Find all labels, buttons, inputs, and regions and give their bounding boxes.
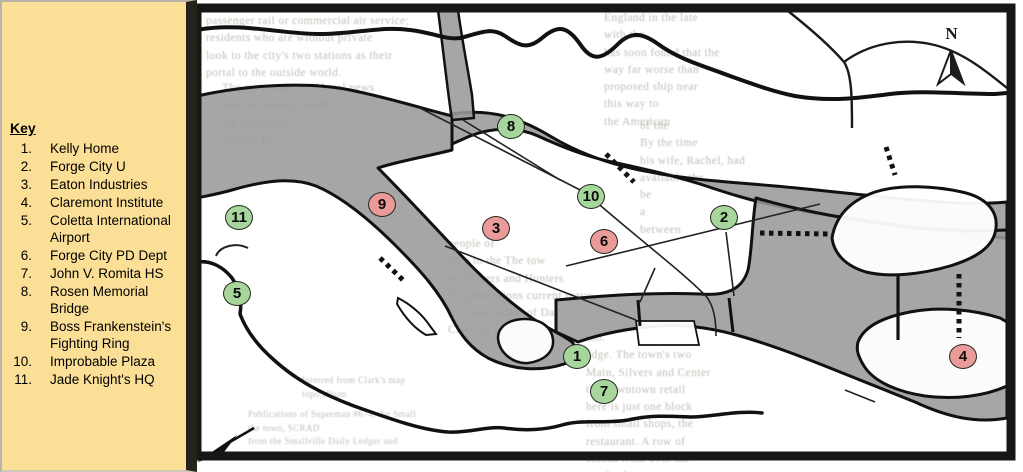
key-item-label: Kelly Home <box>50 140 175 157</box>
key-item: 6.Forge City PD Dept <box>2 247 186 264</box>
key-item: 1.Kelly Home <box>2 140 186 157</box>
key-list: 1.Kelly Home2.Forge City U3.Eaton Indust… <box>2 140 186 388</box>
road-northeast-curve <box>788 11 852 128</box>
key-item-number: 2. <box>2 158 32 175</box>
map-marker-1: 1 <box>563 344 591 369</box>
key-item-number: 1. <box>2 140 32 157</box>
key-item-label: Boss Frankenstein's Fighting Ring <box>50 318 175 352</box>
key-item-number: 5. <box>2 212 32 246</box>
key-item-label: Jade Knight's HQ <box>50 371 175 388</box>
key-item: 5.Coletta International Airport <box>2 212 186 246</box>
lake <box>498 319 553 363</box>
key-item-label: John V. Romita HS <box>50 265 175 282</box>
map-marker-6: 6 <box>590 229 618 254</box>
compass-label-n: N <box>941 24 963 44</box>
key-item: 8.Rosen Memorial Bridge <box>2 283 186 317</box>
key-panel: Key 1.Kelly Home2.Forge City U3.Eaton In… <box>0 0 197 472</box>
bridge-dashed <box>886 147 895 175</box>
key-item: 2.Forge City U <box>2 158 186 175</box>
map-marker-7: 7 <box>590 379 618 404</box>
key-item-label: Coletta International Airport <box>50 212 175 246</box>
key-item: 11.Jade Knight's HQ <box>2 371 186 388</box>
scanned-map-page: passenger rail or commercial air service… <box>0 0 1023 472</box>
key-title: Key <box>10 120 186 136</box>
road-northeast-curve <box>844 42 1007 88</box>
key-item-number: 8. <box>2 283 32 317</box>
road-strip-north <box>438 10 474 120</box>
channel-notch <box>636 321 699 345</box>
map-marker-5: 5 <box>223 281 251 306</box>
map-marker-11: 11 <box>225 205 253 230</box>
map-marker-4: 4 <box>949 344 977 369</box>
key-item-label: Forge City PD Dept <box>50 247 175 264</box>
key-item-number: 6. <box>2 247 32 264</box>
key-item: 3.Eaton Industries <box>2 176 186 193</box>
key-item-label: Improbable Plaza <box>50 353 175 370</box>
key-item-number: 9. <box>2 318 32 352</box>
map-marker-3: 3 <box>482 216 510 241</box>
map-marker-8: 8 <box>497 114 525 139</box>
map-marker-2: 2 <box>710 205 738 230</box>
road-link <box>638 300 640 326</box>
road <box>845 390 875 402</box>
key-item-number: 10. <box>2 353 32 370</box>
key-item: 9.Boss Frankenstein's Fighting Ring <box>2 318 186 352</box>
compass: N <box>941 24 963 44</box>
road <box>726 232 734 296</box>
bridge-dashed <box>380 258 404 281</box>
key-item: 4.Claremont Institute <box>2 194 186 211</box>
river-sliver-island <box>397 298 436 335</box>
key-item: 7.John V. Romita HS <box>2 265 186 282</box>
key-item-number: 4. <box>2 194 32 211</box>
key-item-label: Rosen Memorial Bridge <box>50 283 175 317</box>
key-item-number: 3. <box>2 176 32 193</box>
map-marker-10: 10 <box>577 184 605 209</box>
key-item-label: Claremont Institute <box>50 194 175 211</box>
key-item-number: 11. <box>2 371 32 388</box>
key-item: 10.Improbable Plaza <box>2 353 186 370</box>
key-item-label: Eaton Industries <box>50 176 175 193</box>
cove-hook <box>216 245 248 256</box>
key-item-number: 7. <box>2 265 32 282</box>
map-marker-9: 9 <box>368 192 396 217</box>
key-item-label: Forge City U <box>50 158 175 175</box>
